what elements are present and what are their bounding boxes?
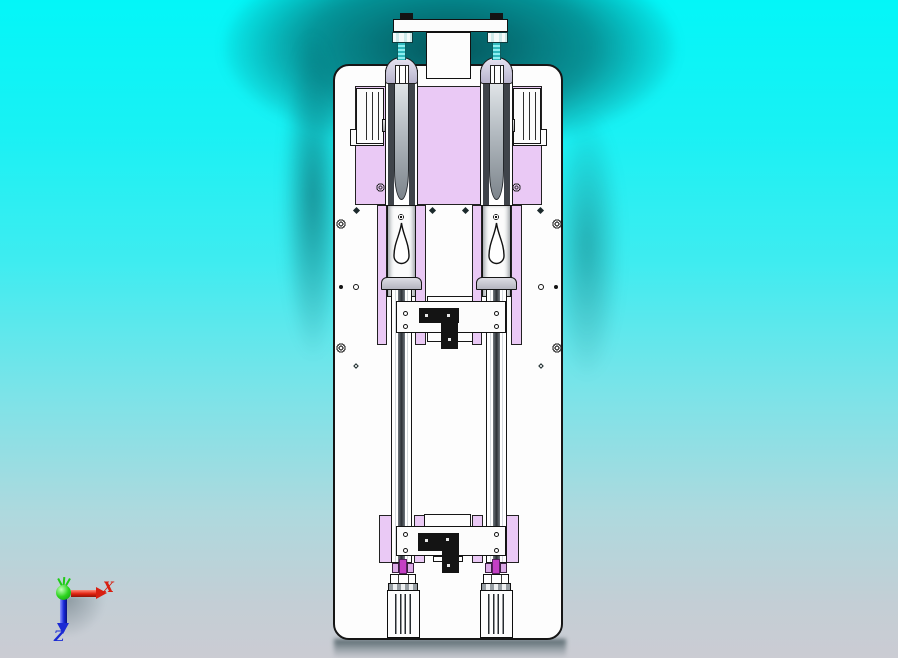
x-axis-arrow [71,590,96,597]
right-teardrop-follower [488,222,505,268]
threaded-rod [492,43,501,60]
left-cylinder-rod [399,559,407,574]
right-rod-collar [500,563,507,573]
purple-hole-left [376,183,385,192]
bracket-screw [425,539,428,542]
plate-small-hole [353,284,359,290]
cap-slot [395,65,409,84]
right-rod-collar [485,563,492,573]
right-cylinder-rod [492,559,500,574]
rail-screw [493,214,499,220]
bracket-screw [446,538,449,541]
top-mount-bar [393,19,508,32]
left-guide-block [356,88,384,144]
rail-screw [398,214,404,220]
x-axis-label: X [103,581,114,595]
right-guide-slots [518,92,537,140]
plate-dot-hole [554,285,558,289]
bar-hole [403,548,408,553]
plate-small-hole [538,284,544,290]
bar-hole [494,324,499,329]
cylinder-ribs [488,594,507,634]
plate-bolt-hole [336,343,346,353]
left-rod-collar [407,563,414,573]
bar-hole [403,311,408,316]
plate-bolt-hole [552,343,562,353]
triad-shadow [64,596,106,636]
bar-hole [494,548,499,553]
z-axis-label: Z [54,630,64,644]
plate-bolt-hole [552,219,562,229]
hex-nut [487,32,508,43]
lower-t-bracket-stem [442,533,459,573]
top-center-tab [426,32,471,79]
bracket-screw [425,314,428,317]
cad-viewport[interactable]: X Z [0,0,898,658]
bracket-screw [448,338,451,341]
threaded-rod [397,43,406,60]
bracket-screw [447,314,450,317]
plate-dot-hole [339,285,343,289]
bar-hole [403,532,408,537]
purple-hole-right [512,183,521,192]
bar-hole [403,324,408,329]
origin-ball [56,585,71,600]
cap-slot [490,65,504,84]
channel-wall [504,71,510,205]
bracket-screw [447,564,450,567]
plate-bolt-hole [336,219,346,229]
left-teardrop-follower [393,222,410,268]
right-piston-rod [489,76,504,200]
cylinder-ribs [395,594,414,634]
right-cylinder-body [480,590,513,638]
bar-hole [494,532,499,537]
left-cylinder-body [387,590,420,638]
right-rod-end-cap [480,57,513,84]
top-stud [400,13,413,20]
z-axis-arrow [60,599,67,624]
hex-nut [392,32,413,43]
left-guide-slots [361,92,380,140]
bar-hole [494,311,499,316]
right-guide-block [513,88,541,144]
left-rod-collar [392,563,399,573]
left-piston-rod [394,76,409,200]
left-rod-end-cap [385,57,418,84]
cast-shadow-bottom [334,639,566,658]
channel-wall [409,71,415,205]
top-stud [490,13,503,20]
